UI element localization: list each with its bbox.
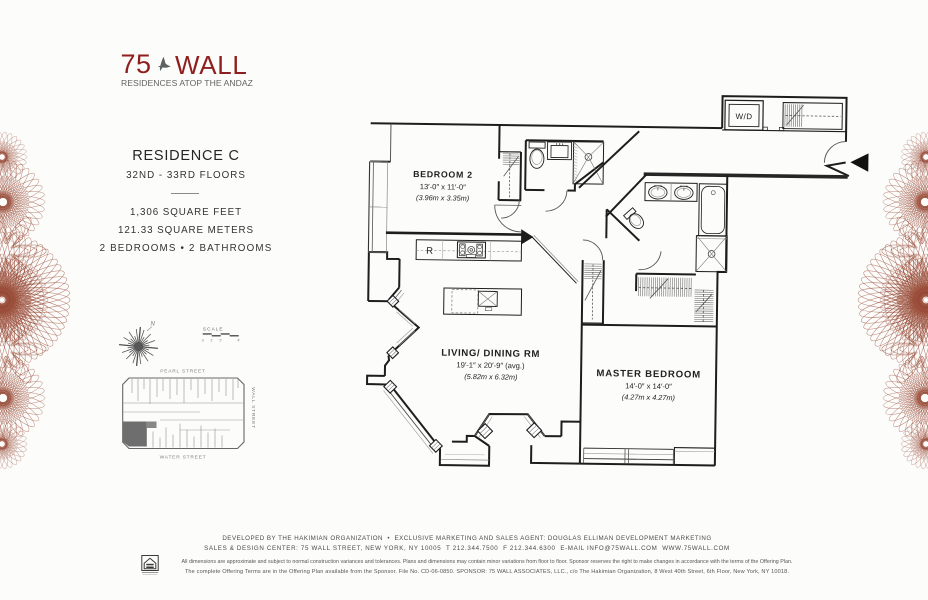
svg-text:SCALE: SCALE	[203, 327, 224, 332]
svg-text:MASTER BEDROOM: MASTER BEDROOM	[596, 368, 701, 380]
svg-text:N: N	[151, 322, 156, 328]
svg-text:(3.96m x 3.35m): (3.96m x 3.35m)	[416, 193, 469, 203]
svg-text:4': 4'	[237, 338, 240, 343]
svg-text:W/D: W/D	[735, 112, 752, 121]
svg-text:LIVING/ DINING RM: LIVING/ DINING RM	[441, 348, 540, 360]
svg-text:BEDROOM 2: BEDROOM 2	[413, 169, 473, 180]
svg-text:WALL STREET: WALL STREET	[250, 387, 256, 429]
svg-text:(5.82m x 6.32m): (5.82m x 6.32m)	[464, 372, 517, 382]
svg-text:13′-0″ x 11′-0″: 13′-0″ x 11′-0″	[420, 182, 467, 192]
svg-text:R: R	[426, 246, 433, 257]
svg-text:2': 2'	[219, 338, 222, 343]
svg-text:14′-0″ x 14′-0″: 14′-0″ x 14′-0″	[625, 381, 672, 391]
svg-text:PEARL STREET: PEARL STREET	[160, 369, 206, 375]
svg-text:0: 0	[202, 338, 205, 343]
svg-text:WATER STREET: WATER STREET	[160, 455, 207, 461]
svg-text:(4.27m x 4.27m): (4.27m x 4.27m)	[622, 392, 675, 402]
svg-text:19′-1″ x 20′-9″ (avg.): 19′-1″ x 20′-9″ (avg.)	[456, 360, 525, 370]
svg-text:1': 1'	[210, 338, 213, 343]
